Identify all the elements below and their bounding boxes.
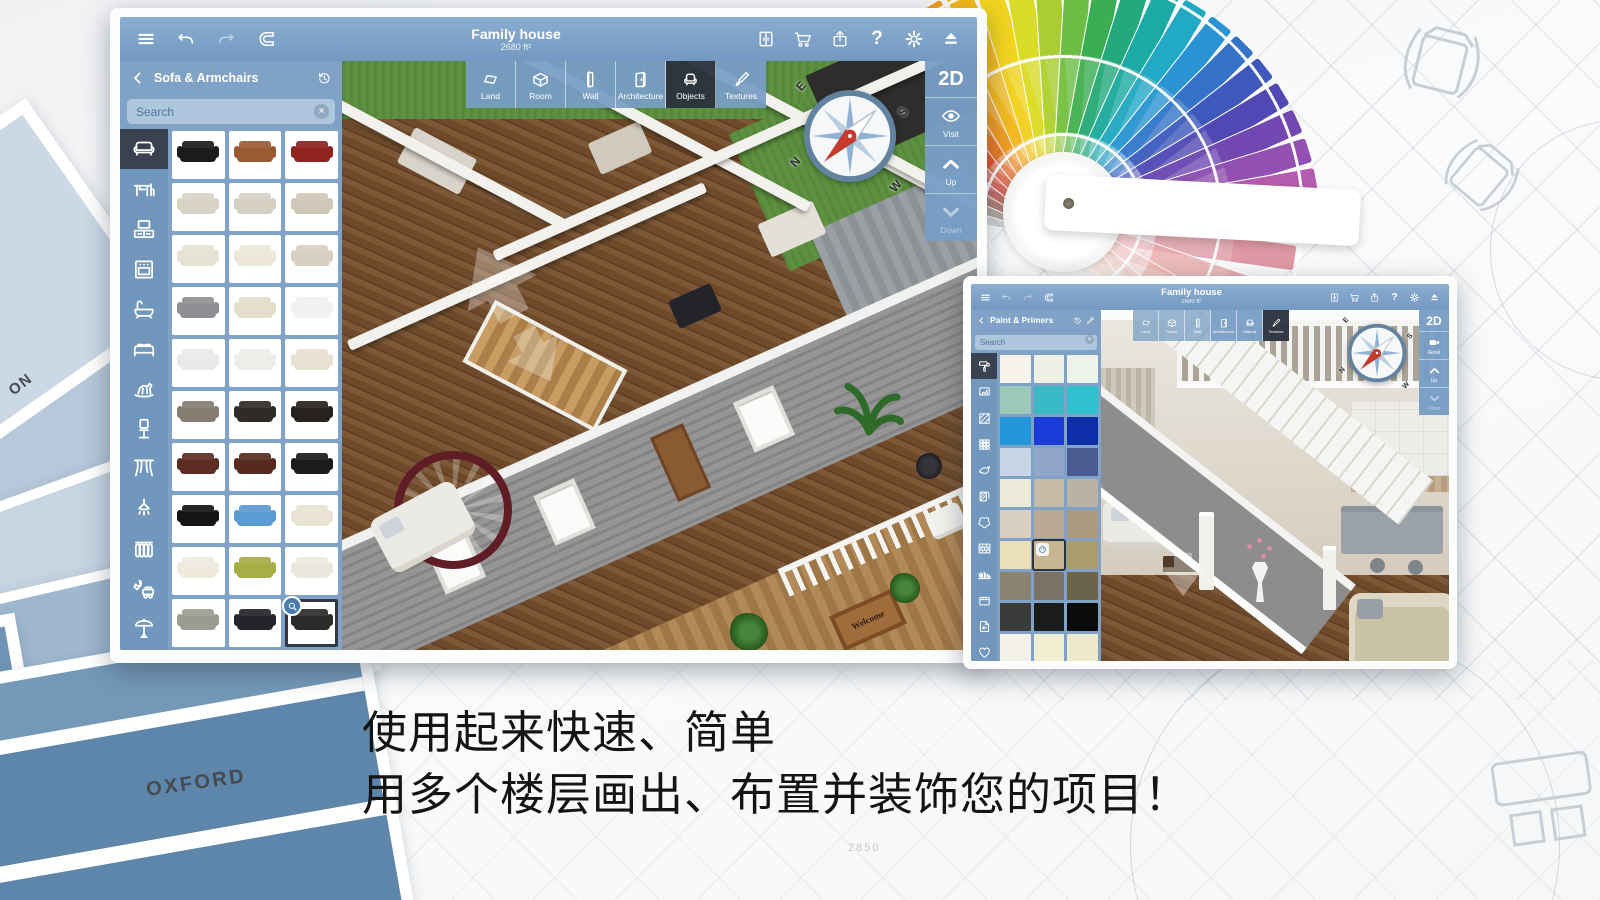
2d-mode-button[interactable]: 2D <box>1419 310 1449 332</box>
help-icon[interactable]: ? <box>1389 292 1400 303</box>
2d-mode-button[interactable]: 2D <box>925 61 977 98</box>
floor-down-button[interactable]: Down <box>925 194 977 241</box>
furniture-item[interactable] <box>172 131 225 179</box>
category-curtains[interactable] <box>120 449 168 489</box>
architecture-icon <box>1218 317 1230 329</box>
sofa-thumbnail <box>294 460 330 474</box>
cart-icon[interactable] <box>793 29 813 49</box>
color-swatch[interactable] <box>1067 603 1098 631</box>
category-heart[interactable] <box>971 639 997 661</box>
furniture-item[interactable] <box>229 391 282 439</box>
color-swatch[interactable] <box>1000 634 1031 661</box>
sofa-thumbnail <box>237 564 273 578</box>
clear-search-icon[interactable]: × <box>314 104 329 119</box>
wardrobe-icon[interactable] <box>756 29 776 49</box>
color-swatch[interactable] <box>1067 448 1098 476</box>
ceiling-lamp-icon <box>131 496 157 522</box>
toolbar-objects[interactable]: Objects <box>1237 310 1263 341</box>
toolbar-label: Room <box>1166 330 1177 334</box>
color-swatch[interactable] <box>1034 572 1065 600</box>
color-swatch[interactable] <box>1067 479 1098 507</box>
furniture-item[interactable] <box>229 131 282 179</box>
sofa-icon <box>131 136 157 162</box>
color-swatch[interactable] <box>1000 448 1031 476</box>
furniture-item[interactable] <box>229 547 282 595</box>
category-brick-wall[interactable] <box>971 535 997 561</box>
3d-viewport[interactable]: Welcome LandRoomWallArchitectureObjectsT… <box>342 61 977 650</box>
floor-up-button[interactable]: Up <box>1419 360 1449 388</box>
furniture-item[interactable] <box>229 183 282 231</box>
sofa-thumbnail <box>237 252 273 266</box>
category-wallpaper[interactable] <box>971 483 997 509</box>
objects-icon <box>1244 317 1256 329</box>
sofa-thumbnail <box>180 460 216 474</box>
tile-grid-icon <box>977 437 992 452</box>
category-tile-grid[interactable] <box>971 431 997 457</box>
aerial-button[interactable]: Aerial <box>1419 332 1449 360</box>
category-rocking-horse[interactable] <box>120 369 168 409</box>
color-swatch[interactable] <box>1067 541 1098 569</box>
marketing-caption: 使用起来快速、简单 用多个楼层画出、布置并装饰您的项目！ <box>362 702 1190 826</box>
project-area: 2680 ft² <box>276 42 756 52</box>
color-swatch[interactable] <box>1067 572 1098 600</box>
mode-toolbar: LandRoomWallArchitectureObjectsTextures <box>466 61 766 108</box>
search-input[interactable] <box>975 335 1097 350</box>
office-chair-icon <box>131 416 157 442</box>
furniture-item[interactable] <box>285 287 338 335</box>
toolbar-objects[interactable]: Objects <box>666 61 716 108</box>
chevron-up-icon <box>1428 364 1441 377</box>
blueprint-dimension-label: 2850 <box>848 842 880 854</box>
eyedropper-icon[interactable] <box>1086 316 1095 325</box>
color-swatch[interactable] <box>1000 355 1031 383</box>
sofa-thumbnail <box>237 460 273 474</box>
category-hatch-pattern[interactable] <box>971 405 997 431</box>
category-leather[interactable] <box>971 509 997 535</box>
furniture-item[interactable] <box>285 495 338 543</box>
color-swatch[interactable] <box>1034 417 1065 445</box>
chevron-up-icon <box>940 153 962 175</box>
search-input[interactable] <box>127 99 335 124</box>
paint-tray-icon <box>977 385 992 400</box>
view-rail: 2D Aerial Up Down <box>1419 310 1449 415</box>
toolbar-label: Objects <box>676 92 705 101</box>
color-swatch[interactable] <box>1000 572 1031 600</box>
color-swatch[interactable] <box>1067 386 1098 414</box>
color-swatch[interactable] <box>1000 479 1031 507</box>
furniture-item[interactable] <box>172 599 225 647</box>
category-bathtub[interactable] <box>120 289 168 329</box>
category-fabric[interactable] <box>971 457 997 483</box>
toolbar-room[interactable]: Room <box>1159 310 1185 341</box>
grass-icon <box>977 567 992 582</box>
sofa-thumbnail <box>294 252 330 266</box>
sidebar-title: Paint & Primers <box>990 315 1069 325</box>
furniture-item[interactable] <box>172 495 225 543</box>
sofa-thumbnail <box>180 200 216 214</box>
furniture-item[interactable] <box>172 235 225 283</box>
compass-widget[interactable]: E S N W <box>801 87 899 185</box>
share-icon[interactable] <box>830 29 850 49</box>
stove-icon <box>131 256 157 282</box>
color-swatch[interactable] <box>1034 479 1065 507</box>
mode-toolbar: LandRoomWallArchitectureObjectsTextures <box>1133 310 1289 341</box>
toolbar-label: Land <box>481 92 500 101</box>
room-icon <box>1166 317 1178 329</box>
toolbar-label: Architecture <box>618 92 663 101</box>
eject-icon[interactable] <box>1429 292 1440 303</box>
furniture-item[interactable] <box>172 339 225 387</box>
color-swatch[interactable] <box>1034 510 1065 538</box>
sofa-thumbnail <box>294 512 330 526</box>
land-icon <box>1140 317 1152 329</box>
category-sofa[interactable] <box>120 129 168 169</box>
project-area: 2680 ft² <box>1054 299 1329 306</box>
blueprint-sofa-outline <box>1472 732 1600 879</box>
wall-icon <box>1192 317 1204 329</box>
furniture-item[interactable] <box>285 183 338 231</box>
dining-table-icon <box>131 176 157 202</box>
architecture-icon <box>630 69 651 90</box>
color-swatch[interactable] <box>1067 634 1098 661</box>
toolbar-label: Wall <box>1194 330 1202 334</box>
room-icon <box>530 69 551 90</box>
toolbar-label: Land <box>1141 330 1150 334</box>
textures-sidebar: Paint & Primers × <box>971 310 1101 661</box>
furniture-item[interactable] <box>285 131 338 179</box>
project-title: Family house 2680 ft² <box>1054 288 1329 306</box>
furniture-item[interactable] <box>229 443 282 491</box>
land-icon <box>480 69 501 90</box>
sofa-thumbnail <box>237 304 273 318</box>
sofa-thumbnail <box>180 408 216 422</box>
camera-icon <box>1428 336 1441 349</box>
tv-stand-icon <box>131 216 157 242</box>
color-swatch[interactable] <box>1000 510 1031 538</box>
app-screenshot-main: Family house 2680 ft² ? Sofa & Armchairs… <box>110 8 987 663</box>
category-ceiling-lamp[interactable] <box>120 489 168 529</box>
sofa-thumbnail <box>237 408 273 422</box>
toolbar-wall[interactable]: Wall <box>566 61 616 108</box>
magnet-icon[interactable] <box>1043 292 1054 303</box>
palm-plant <box>834 369 904 439</box>
floor-down-button[interactable]: Down <box>1419 388 1449 415</box>
titlebar: Family house 2680 ft² ? <box>971 284 1449 310</box>
textures-icon <box>731 69 752 90</box>
color-swatch[interactable] <box>1034 448 1065 476</box>
category-paint-tray[interactable] <box>971 379 997 405</box>
furniture-item[interactable] <box>229 235 282 283</box>
category-grass[interactable] <box>971 561 997 587</box>
sofa-thumbnail <box>180 564 216 578</box>
wall-icon <box>580 69 601 90</box>
chevron-down-icon <box>940 201 962 223</box>
magnet-icon[interactable] <box>256 29 276 49</box>
color-swatch[interactable] <box>1034 386 1065 414</box>
objects-icon <box>680 69 701 90</box>
share-icon[interactable] <box>1369 292 1380 303</box>
hatch-pattern-icon <box>977 411 992 426</box>
sofa-thumbnail <box>237 200 273 214</box>
furniture-item[interactable] <box>172 443 225 491</box>
compass-widget[interactable]: E S N W <box>1346 322 1408 384</box>
sofa-thumbnail <box>180 304 216 318</box>
help-icon[interactable]: ? <box>867 29 887 49</box>
redo-icon[interactable] <box>1022 292 1033 303</box>
furniture-item[interactable] <box>285 391 338 439</box>
sofa-thumbnail <box>294 564 330 578</box>
toolbar-architecture[interactable]: Architecture <box>1211 310 1237 341</box>
toolbar-label: Textures <box>725 92 757 101</box>
history-icon[interactable] <box>316 70 332 86</box>
color-swatch[interactable] <box>1000 603 1031 631</box>
furniture-item[interactable] <box>229 287 282 335</box>
wallpaper-icon <box>977 489 992 504</box>
menu-icon[interactable] <box>136 29 156 49</box>
history-icon[interactable] <box>1073 316 1082 325</box>
titlebar: Family house 2680 ft² ? <box>120 17 977 61</box>
toolbar-label: Wall <box>582 92 598 101</box>
sofa-thumbnail <box>237 512 273 526</box>
toolbar-land[interactable]: Land <box>1133 310 1159 341</box>
cart-icon[interactable] <box>1349 292 1360 303</box>
caption-line-2: 用多个楼层画出、布置并装饰您的项目！ <box>362 764 1190 826</box>
sofa-thumbnail <box>294 148 330 162</box>
category-radiator[interactable] <box>120 529 168 569</box>
category-paint-roller[interactable] <box>971 353 997 379</box>
bed-icon <box>131 336 157 362</box>
color-swatch[interactable] <box>1000 386 1031 414</box>
sofa-thumbnail <box>294 616 330 630</box>
category-tv-stand[interactable] <box>120 209 168 249</box>
curtains-icon <box>131 456 157 482</box>
color-swatch[interactable] <box>1034 634 1065 661</box>
fan-pin <box>1063 198 1075 210</box>
brick-wall-icon <box>977 541 992 556</box>
back-icon[interactable] <box>977 316 986 325</box>
textures-icon <box>1270 317 1282 329</box>
paint-roller-icon <box>977 359 992 374</box>
furniture-item[interactable] <box>285 443 338 491</box>
wardrobe-icon[interactable] <box>1329 292 1340 303</box>
toolbar-architecture[interactable]: Architecture <box>616 61 666 108</box>
color-swatch[interactable] <box>1034 541 1065 569</box>
furniture-item[interactable] <box>229 599 282 647</box>
category-garage[interactable] <box>120 569 168 609</box>
category-stove[interactable] <box>120 249 168 289</box>
sofa-thumbnail <box>294 200 330 214</box>
3d-viewport[interactable]: LandRoomWallArchitectureObjectsTextures … <box>1101 310 1449 661</box>
color-swatch[interactable] <box>1067 417 1098 445</box>
category-parasol[interactable] <box>120 609 168 649</box>
promo-screenshot: ON LUE OXFORD 2850 Family house 2680 ft²… <box>0 0 1600 900</box>
color-swatch[interactable] <box>1034 603 1065 631</box>
garage-icon <box>131 576 157 602</box>
sofa-thumbnail <box>294 408 330 422</box>
color-swatch[interactable] <box>1067 355 1098 383</box>
caption-line-1: 使用起来快速、简单 <box>362 702 1190 764</box>
furniture-item[interactable] <box>172 547 225 595</box>
rocking-horse-icon <box>131 376 157 402</box>
view-rail: 2D Visit Up Down <box>925 61 977 241</box>
import-icon <box>977 619 992 634</box>
sofa-thumbnail <box>180 252 216 266</box>
color-swatch[interactable] <box>1067 510 1098 538</box>
eye-icon <box>940 105 962 127</box>
sofa-thumbnail <box>237 356 273 370</box>
category-dining-table[interactable] <box>120 169 168 209</box>
color-swatch[interactable] <box>1034 355 1065 383</box>
floor-up-button[interactable]: Up <box>925 146 977 194</box>
project-title: Family house 2680 ft² <box>276 26 756 52</box>
sofa-thumbnail <box>237 148 273 162</box>
undo-icon[interactable] <box>1001 292 1012 303</box>
sofa-thumbnail <box>180 148 216 162</box>
furniture-item[interactable] <box>285 339 338 387</box>
furniture-item[interactable] <box>285 547 338 595</box>
category-box[interactable] <box>971 587 997 613</box>
color-swatch[interactable] <box>1000 417 1031 445</box>
leather-icon <box>977 515 992 530</box>
sidebar-title: Sofa & Armchairs <box>154 71 308 85</box>
furniture-item[interactable] <box>172 287 225 335</box>
undo-icon[interactable] <box>176 29 196 49</box>
chevron-down-icon <box>1428 392 1441 405</box>
menu-icon[interactable] <box>980 292 991 303</box>
toolbar-label: Architecture <box>1213 330 1234 334</box>
box-icon <box>977 593 992 608</box>
sofa-thumbnail <box>237 616 273 630</box>
palette-badge-icon <box>1036 543 1049 556</box>
color-swatch[interactable] <box>1000 541 1031 569</box>
redo-icon[interactable] <box>216 29 236 49</box>
back-icon[interactable] <box>130 70 146 86</box>
catalog-sidebar: Sofa & Armchairs × <box>120 61 342 650</box>
radiator-icon <box>131 536 157 562</box>
settings-icon[interactable] <box>1409 292 1420 303</box>
settings-icon[interactable] <box>904 29 924 49</box>
sofa-thumbnail <box>180 616 216 630</box>
toolbar-textures[interactable]: Textures <box>1263 310 1289 341</box>
sofa-thumbnail <box>294 356 330 370</box>
heart-icon <box>977 645 992 660</box>
furniture-item[interactable] <box>172 391 225 439</box>
toolbar-textures[interactable]: Textures <box>716 61 766 108</box>
furniture-item[interactable] <box>229 339 282 387</box>
fabric-icon <box>977 463 992 478</box>
toolbar-room[interactable]: Room <box>516 61 566 108</box>
sofa-thumbnail <box>180 356 216 370</box>
category-import[interactable] <box>971 613 997 639</box>
move-arrow[interactable] <box>1147 542 1219 614</box>
sofa-thumbnail <box>180 512 216 526</box>
furniture-item[interactable] <box>229 495 282 543</box>
bathtub-icon <box>131 296 157 322</box>
eject-icon[interactable] <box>941 29 961 49</box>
furniture-item[interactable] <box>285 599 338 647</box>
furniture-item[interactable] <box>285 235 338 283</box>
clear-search-icon[interactable]: × <box>1085 335 1094 344</box>
category-bed[interactable] <box>120 329 168 369</box>
app-screenshot-secondary: Family house 2680 ft² ? Paint & Primers … <box>963 276 1457 669</box>
toolbar-label: Room <box>529 92 552 101</box>
toolbar-label: Textures <box>1268 330 1283 334</box>
parasol-icon <box>131 616 157 642</box>
visit-button[interactable]: Visit <box>925 98 977 146</box>
toolbar-land[interactable]: Land <box>466 61 516 108</box>
toolbar-label: Objects <box>1243 330 1257 334</box>
category-office-chair[interactable] <box>120 409 168 449</box>
furniture-item[interactable] <box>172 183 225 231</box>
sofa-thumbnail <box>294 304 330 318</box>
toolbar-wall[interactable]: Wall <box>1185 310 1211 341</box>
